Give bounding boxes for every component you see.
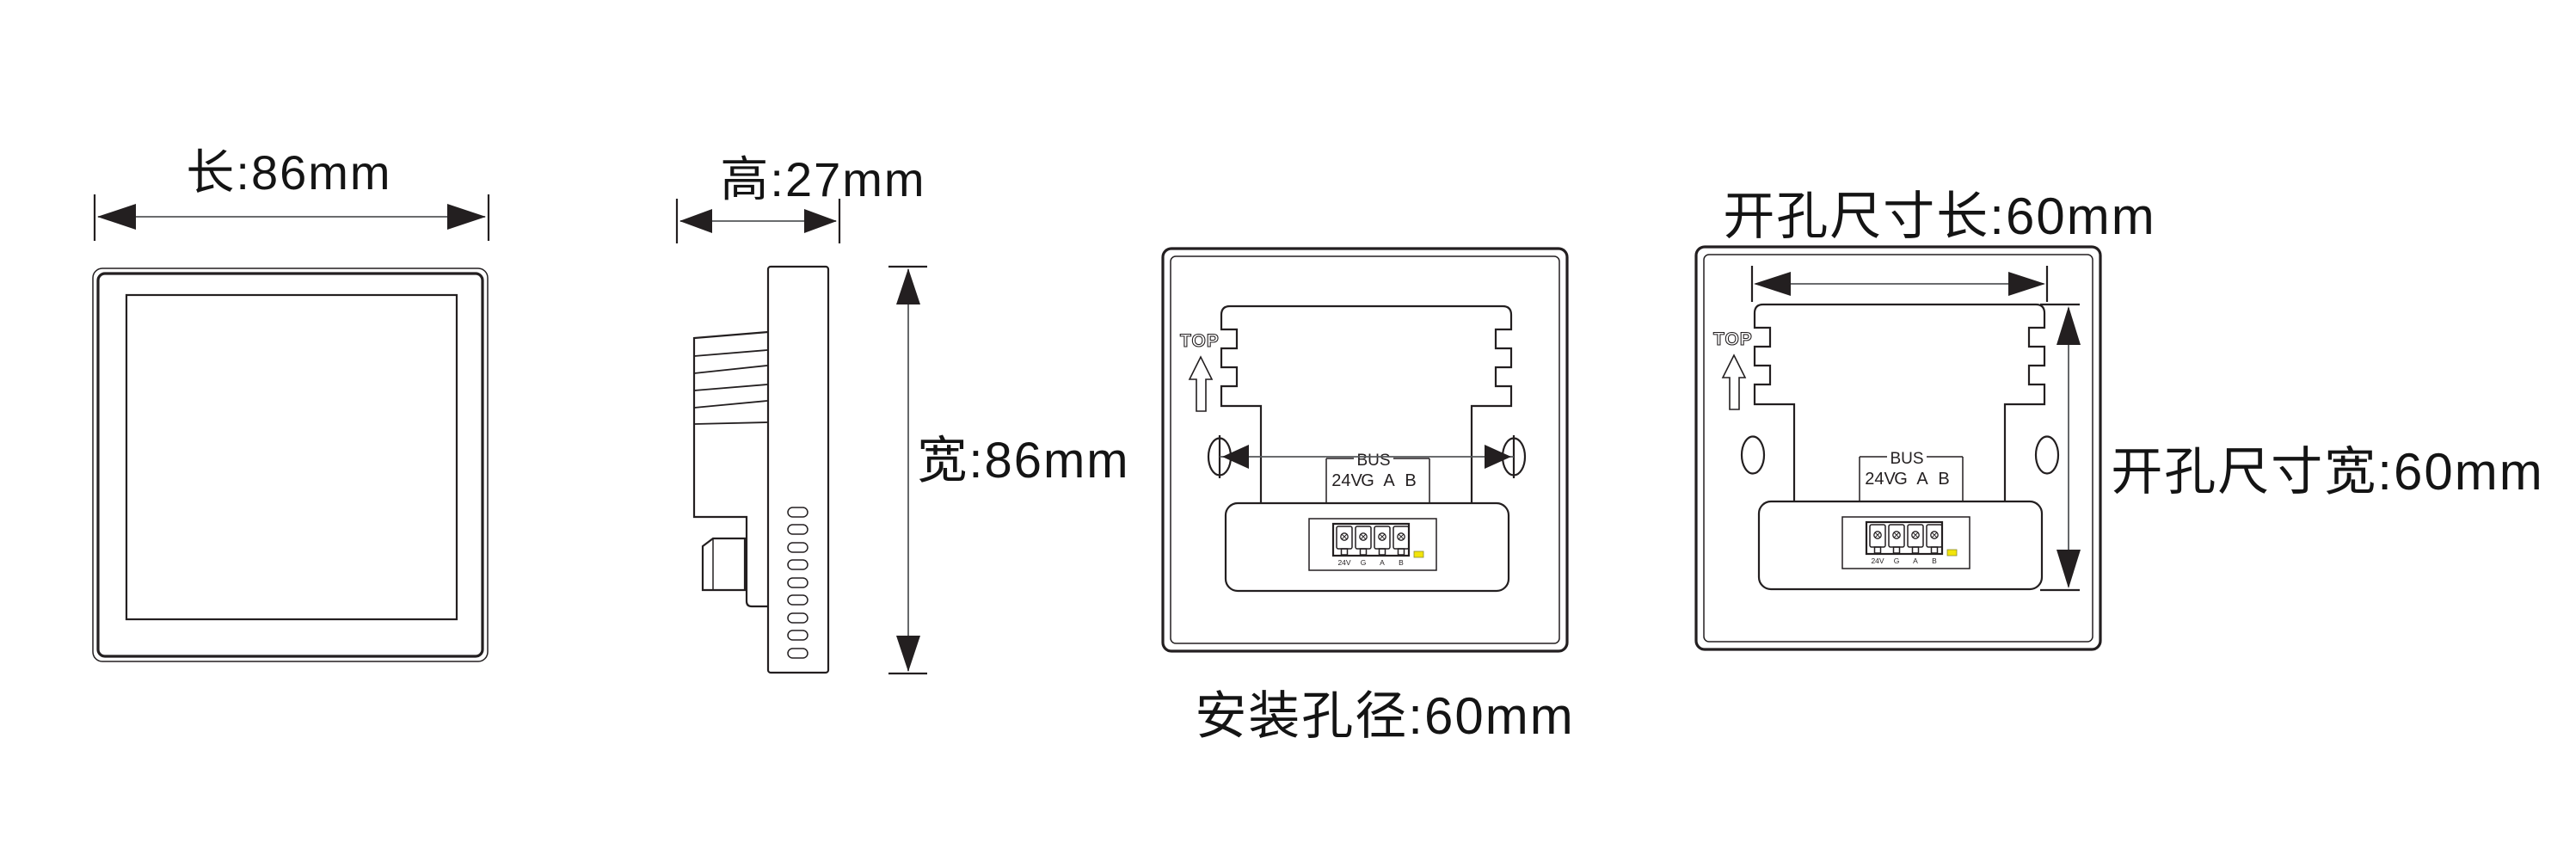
front-length-caption: 长:86mm: [186, 134, 391, 204]
dimension-ticks: [2040, 304, 2080, 590]
panel-edge-profile: [768, 267, 828, 673]
cutout-length-caption: 开孔尺寸长:60mm: [1723, 175, 2155, 249]
front-view: [93, 194, 489, 661]
cutout-length-dimension: [1752, 266, 2047, 302]
arrowhead-left-icon: [97, 204, 136, 230]
cutout-width-dimension: [2040, 304, 2081, 590]
arrowhead-down-icon: [2056, 550, 2081, 588]
arrowhead-up-icon: [896, 268, 920, 304]
side-height-caption: 高:27mm: [720, 141, 925, 211]
back-plate-instance: [1696, 247, 2100, 649]
front-screen: [126, 295, 457, 619]
arrowhead-left-icon: [679, 209, 712, 233]
back-view-mounting: [1163, 249, 1567, 651]
mounting-hole-caption: 安装孔径:60mm: [1195, 674, 1574, 749]
arrowhead-right-icon: [804, 209, 837, 233]
arrowhead-left-icon: [1222, 445, 1249, 469]
arrowhead-down-icon: [896, 636, 920, 672]
arrowhead-left-icon: [1754, 272, 1791, 296]
front-bezel-outer: [93, 268, 488, 661]
back-plate-instance: [1163, 249, 1567, 651]
cutout-width-caption: 开孔尺寸宽:60mm: [2111, 430, 2543, 505]
back-view-cutout: [1696, 247, 2100, 649]
front-bezel: [98, 274, 483, 656]
arrowhead-right-icon: [1485, 445, 1511, 469]
side-view: [677, 199, 927, 673]
side-width-caption: 宽:86mm: [917, 420, 1129, 492]
arrowhead-right-icon: [447, 204, 486, 230]
arrowhead-up-icon: [2056, 306, 2081, 345]
arrowhead-right-icon: [2008, 272, 2045, 296]
terminal-protrusion-profile: [703, 538, 745, 590]
dimension-diagram: TOP BUS 24V G A B: [0, 0, 2576, 861]
